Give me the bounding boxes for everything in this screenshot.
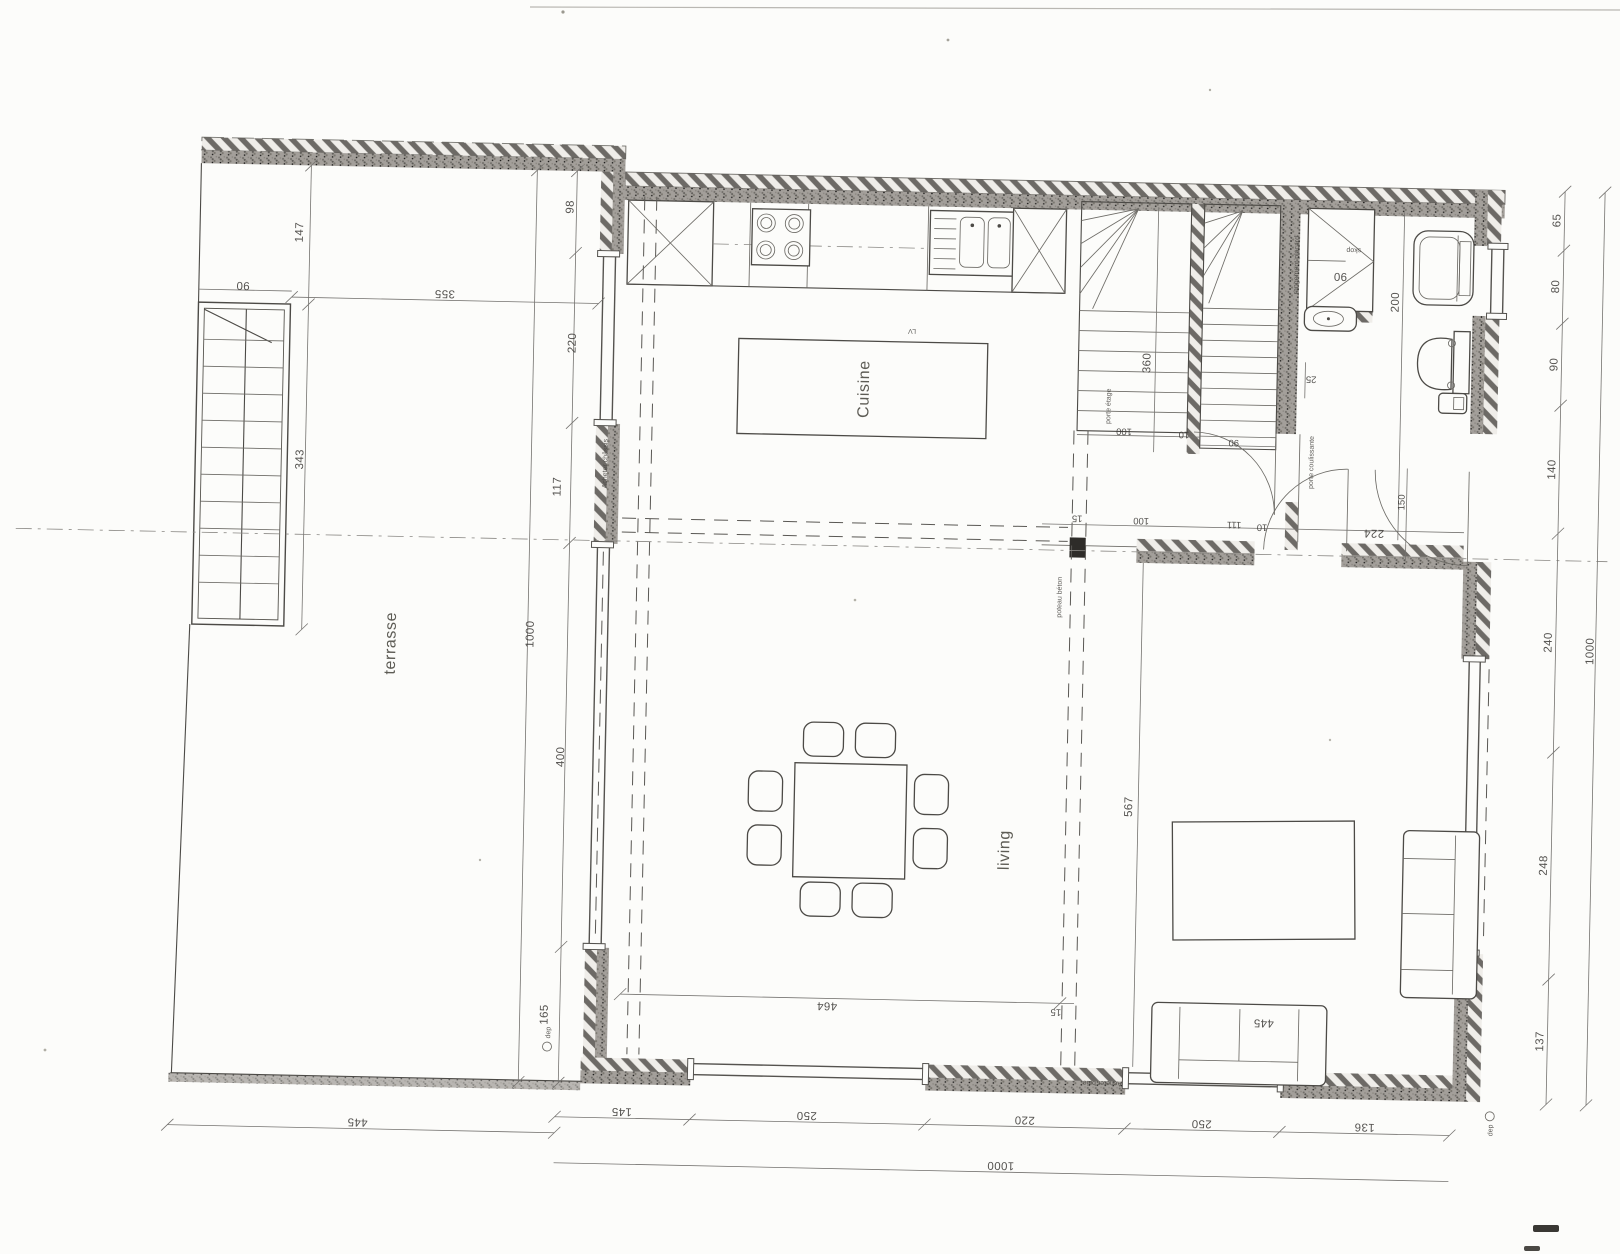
toilet bbox=[1417, 331, 1470, 394]
svg-text:150: 150 bbox=[1396, 494, 1407, 510]
dep-symbol bbox=[542, 1042, 551, 1051]
windows bbox=[580, 224, 1508, 1096]
svg-text:145: 145 bbox=[611, 1105, 632, 1117]
cabinet-x-1 bbox=[627, 200, 714, 286]
svg-text:250: 250 bbox=[796, 1109, 817, 1121]
svg-text:1000: 1000 bbox=[987, 1159, 1014, 1172]
svg-text:25: 25 bbox=[1306, 373, 1317, 384]
annotation-dep-1: dep bbox=[545, 1027, 552, 1039]
svg-text:355: 355 bbox=[434, 287, 455, 299]
svg-text:165: 165 bbox=[538, 1004, 550, 1025]
annotation-rangement: rangement placard bbox=[1293, 236, 1301, 295]
svg-text:200: 200 bbox=[1390, 292, 1402, 313]
svg-text:117: 117 bbox=[552, 477, 564, 497]
annotation-skop: skop bbox=[1346, 246, 1361, 253]
svg-text:250: 250 bbox=[1191, 1117, 1212, 1129]
svg-text:98: 98 bbox=[564, 200, 576, 214]
svg-text:15: 15 bbox=[1050, 1006, 1061, 1017]
annotation-poteau: poteau béton bbox=[1056, 577, 1064, 618]
svg-text:240: 240 bbox=[1542, 632, 1554, 653]
labels: Cuisine living terrasse 98 220 117 400 1… bbox=[218, 186, 1606, 1183]
stair-flight-right bbox=[1200, 204, 1281, 450]
bathtub bbox=[1413, 231, 1475, 306]
west-window-2-sliding bbox=[583, 541, 614, 949]
annotation-porte-etage: porte étage bbox=[1105, 388, 1113, 424]
dep-symbol-2 bbox=[1485, 1112, 1494, 1121]
living-area bbox=[742, 721, 1502, 1121]
svg-text:220: 220 bbox=[1014, 1113, 1035, 1125]
annotation-acheter-baie: Acheter baie bbox=[1083, 1079, 1123, 1087]
svg-text:100: 100 bbox=[1133, 515, 1149, 526]
walls bbox=[168, 137, 1506, 1109]
svg-text:445: 445 bbox=[1253, 1016, 1274, 1028]
svg-text:10: 10 bbox=[1179, 429, 1190, 440]
svg-text:220: 220 bbox=[567, 333, 579, 354]
svg-text:15: 15 bbox=[1072, 512, 1083, 523]
kitchen-area bbox=[624, 200, 1067, 440]
floor-plan-svg: Cuisine living terrasse 98 220 117 400 1… bbox=[0, 0, 1620, 1254]
svg-text:360: 360 bbox=[1141, 353, 1153, 374]
exterior-stair bbox=[192, 302, 291, 626]
svg-text:100: 100 bbox=[1116, 425, 1132, 436]
svg-text:90: 90 bbox=[1228, 437, 1239, 448]
plan: Cuisine living terrasse 98 220 117 400 1… bbox=[3, 133, 1616, 1184]
scanned-floor-plan: Cuisine living terrasse 98 220 117 400 1… bbox=[0, 0, 1620, 1254]
room-label-living: living bbox=[996, 830, 1014, 870]
west-window-1 bbox=[594, 250, 620, 425]
cabinet-x-2 bbox=[1012, 208, 1067, 293]
svg-text:1000: 1000 bbox=[1584, 638, 1597, 665]
svg-text:10: 10 bbox=[1257, 521, 1268, 532]
svg-text:464: 464 bbox=[816, 999, 837, 1011]
svg-text:111: 111 bbox=[1227, 519, 1242, 530]
sofa-south bbox=[1150, 1002, 1327, 1086]
annotation-lv: LV bbox=[908, 327, 917, 334]
annotation-porte-coulissante: porte coulissante bbox=[1308, 436, 1316, 489]
svg-text:147: 147 bbox=[294, 222, 306, 243]
svg-text:224: 224 bbox=[1363, 527, 1384, 539]
svg-text:248: 248 bbox=[1538, 855, 1550, 876]
svg-text:90: 90 bbox=[1548, 358, 1560, 372]
svg-text:90: 90 bbox=[1333, 270, 1347, 282]
svg-text:445: 445 bbox=[347, 1115, 368, 1127]
sink-unit bbox=[929, 210, 1014, 276]
svg-text:140: 140 bbox=[1546, 459, 1558, 480]
annotation-dep-2: dep bbox=[1487, 1124, 1494, 1136]
annotation-acheter-chassis: Acheter châssis bbox=[602, 438, 610, 488]
south-window-1 bbox=[687, 1059, 928, 1085]
room-label-kitchen: Cuisine bbox=[855, 360, 873, 418]
stair-flight-left bbox=[1077, 202, 1192, 433]
hob bbox=[751, 209, 810, 266]
svg-text:65: 65 bbox=[1551, 214, 1563, 228]
sofa-east bbox=[1400, 830, 1479, 999]
corner-basin bbox=[1438, 393, 1466, 414]
svg-text:80: 80 bbox=[1550, 280, 1562, 294]
dining-table bbox=[793, 763, 907, 879]
svg-text:343: 343 bbox=[294, 449, 306, 470]
svg-text:400: 400 bbox=[555, 746, 567, 767]
room-label-terrace: terrasse bbox=[382, 612, 400, 675]
door-bathroom bbox=[1264, 468, 1349, 552]
svg-text:136: 136 bbox=[1354, 1121, 1375, 1133]
washbasin bbox=[1304, 306, 1356, 331]
svg-text:137: 137 bbox=[1534, 1031, 1546, 1052]
closet bbox=[1307, 208, 1375, 311]
svg-text:567: 567 bbox=[1123, 796, 1135, 817]
svg-text:90: 90 bbox=[236, 279, 250, 291]
east-window-bathroom bbox=[1486, 243, 1508, 319]
rug bbox=[1172, 821, 1355, 940]
svg-text:1000: 1000 bbox=[524, 620, 537, 647]
